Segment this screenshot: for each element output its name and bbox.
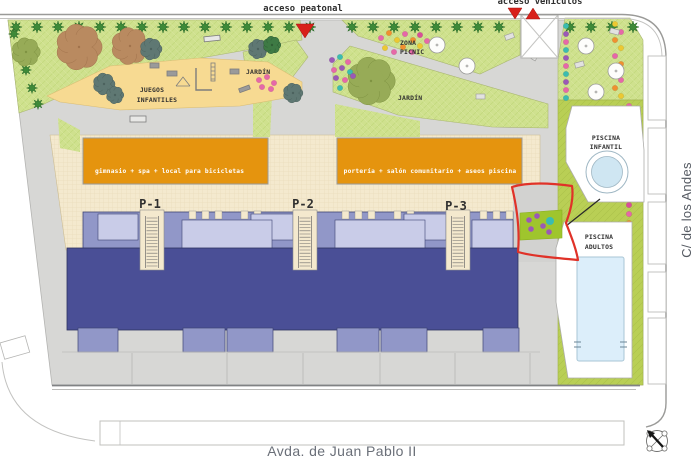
play-box-icon bbox=[230, 69, 239, 74]
adult-pool-water bbox=[577, 257, 624, 361]
tree-icon bbox=[262, 21, 274, 33]
portal-label-p1: P-1 bbox=[139, 197, 161, 211]
flower-dot bbox=[563, 63, 569, 69]
parking-bay bbox=[648, 56, 666, 120]
flower-dot bbox=[612, 21, 618, 27]
tree-dot bbox=[271, 44, 273, 46]
flower-dot bbox=[333, 75, 339, 81]
infant-pool-label-2: INFANTIL bbox=[590, 143, 622, 151]
entry-block bbox=[381, 328, 427, 352]
tree-icon bbox=[52, 21, 64, 33]
services-east-label: portería + salón comunitario + aseos pis… bbox=[344, 167, 517, 175]
flower-dot bbox=[563, 71, 569, 77]
entry-block bbox=[183, 328, 225, 352]
flower-dot bbox=[612, 53, 618, 59]
tree-icon bbox=[627, 21, 639, 33]
balcony-tooth bbox=[342, 211, 349, 219]
tree-dot bbox=[150, 48, 152, 50]
flower-dot bbox=[337, 54, 343, 60]
penthouse-block bbox=[98, 214, 138, 240]
infant-pool-water bbox=[592, 157, 623, 188]
tree-icon bbox=[31, 21, 43, 33]
portal-strip-p2 bbox=[293, 210, 317, 270]
balcony-tooth bbox=[241, 211, 248, 219]
tree-icon bbox=[178, 21, 190, 33]
tree-dot bbox=[292, 92, 294, 94]
tree-icon bbox=[199, 21, 211, 33]
entry-block bbox=[483, 328, 519, 352]
tree-icon bbox=[346, 21, 358, 33]
flower-dot bbox=[386, 30, 392, 36]
services-building-east bbox=[337, 138, 522, 184]
portal-label-p2: P-2 bbox=[292, 197, 314, 211]
flower-dot bbox=[563, 23, 569, 29]
playground-label-1: JUEGOS bbox=[140, 86, 164, 94]
tree-icon bbox=[9, 29, 20, 40]
flower-dot bbox=[526, 217, 532, 223]
services-west-label: gimnasio + spa + local para bicicletas bbox=[95, 167, 244, 175]
flower-dot bbox=[563, 87, 569, 93]
flower-dot bbox=[528, 226, 534, 232]
parking-bay bbox=[648, 202, 666, 264]
flower-dot bbox=[534, 213, 540, 219]
tree-dot bbox=[114, 94, 116, 96]
site-plan-page: gimnasio + spa + local para bicicletas p… bbox=[0, 0, 700, 475]
adult-pool-label-2: ADULTOS bbox=[585, 243, 613, 251]
tree-dot bbox=[257, 48, 259, 50]
tree-icon bbox=[94, 21, 106, 33]
tree-icon bbox=[430, 21, 442, 33]
site-plan-svg: gimnasio + spa + local para bicicletas p… bbox=[0, 0, 700, 475]
flower-dot bbox=[268, 86, 274, 92]
balcony-tooth bbox=[368, 211, 375, 219]
lounger-icon bbox=[476, 94, 485, 99]
tree-dot bbox=[370, 80, 372, 82]
picnic-table-center bbox=[595, 91, 598, 94]
adult-pool-label-1: PISCINA bbox=[585, 233, 613, 241]
flower-dot bbox=[391, 49, 397, 55]
picnic-table-center bbox=[615, 70, 618, 73]
tree-icon bbox=[472, 21, 484, 33]
vehicle-access-label: acceso vehículos bbox=[498, 0, 583, 7]
flower-dot bbox=[331, 67, 337, 73]
bench-icon bbox=[130, 116, 146, 122]
balcony-tooth bbox=[506, 211, 513, 219]
street-label-right: C/ de los Andes bbox=[679, 162, 694, 258]
flower-dot bbox=[563, 95, 569, 101]
pedestrian-access-label: acceso peatonal bbox=[263, 4, 342, 14]
tree-icon bbox=[451, 21, 463, 33]
tree-icon bbox=[493, 21, 505, 33]
play-box-icon bbox=[167, 71, 177, 76]
tree-icon bbox=[27, 83, 38, 94]
flower-dot bbox=[563, 39, 569, 45]
services-building-west bbox=[83, 138, 268, 184]
road-median-strip bbox=[100, 421, 624, 445]
flower-dot bbox=[329, 57, 335, 63]
flower-dot bbox=[345, 59, 351, 65]
tree-icon bbox=[585, 21, 597, 33]
flower-dot bbox=[271, 80, 277, 86]
large-tree-icon bbox=[107, 86, 124, 103]
balcony-tooth bbox=[493, 211, 500, 219]
parking-bays-layer bbox=[648, 56, 666, 384]
flower-dot bbox=[382, 45, 388, 51]
flower-dot bbox=[342, 77, 348, 83]
flower-dot bbox=[563, 55, 569, 61]
flower-dot bbox=[626, 202, 632, 208]
picnic-table-center bbox=[466, 65, 469, 68]
large-tree-icon bbox=[284, 83, 303, 103]
flower-dot bbox=[563, 79, 569, 85]
flower-dot bbox=[563, 31, 569, 37]
balcony-tooth bbox=[480, 211, 487, 219]
portal-label-p3: P-3 bbox=[445, 199, 467, 213]
tree-dot bbox=[129, 45, 131, 47]
street-label-bottom: Avda. de Juan Pablo II bbox=[267, 443, 416, 459]
flower-dot bbox=[339, 65, 345, 71]
garden-small-label: JARDÍN bbox=[246, 67, 270, 76]
infant-pool-label-1: PISCINA bbox=[592, 134, 620, 142]
tree-icon bbox=[283, 21, 295, 33]
tree-icon bbox=[33, 99, 44, 110]
tree-dot bbox=[103, 83, 105, 85]
flower-dot bbox=[394, 37, 400, 43]
tree-icon bbox=[157, 21, 169, 33]
balcony-tooth bbox=[202, 211, 209, 219]
flower-dot bbox=[546, 229, 552, 235]
tree-icon bbox=[241, 21, 253, 33]
playground-label-2: INFANTILES bbox=[137, 96, 177, 104]
flower-dot bbox=[618, 45, 624, 51]
flower-dot bbox=[337, 85, 343, 91]
tree-dot bbox=[25, 51, 27, 53]
portal-strip-p1 bbox=[140, 210, 164, 270]
flower-dot bbox=[540, 223, 546, 229]
picnic-label-2: PICNIC bbox=[400, 48, 424, 56]
tree-icon bbox=[409, 21, 421, 33]
flower-dot bbox=[546, 217, 554, 225]
tree-icon bbox=[367, 21, 379, 33]
balcony-tooth bbox=[189, 211, 196, 219]
parking-bay bbox=[648, 318, 666, 384]
entry-block bbox=[337, 328, 379, 352]
picnic-table-center bbox=[436, 44, 439, 47]
garden-large-label: JARDÍN bbox=[398, 93, 422, 102]
balcony-tooth bbox=[394, 211, 401, 219]
flower-dot bbox=[417, 32, 423, 38]
parking-bay bbox=[648, 128, 666, 194]
flower-dot bbox=[612, 37, 618, 43]
tree-dot bbox=[78, 46, 80, 48]
flower-dot bbox=[612, 85, 618, 91]
tree-icon bbox=[220, 21, 232, 33]
flower-dot bbox=[626, 211, 632, 217]
entry-block bbox=[78, 328, 118, 352]
flower-dot bbox=[259, 84, 265, 90]
flower-dot bbox=[402, 31, 408, 37]
picnic-table-center bbox=[585, 45, 588, 48]
balcony-tooth bbox=[355, 211, 362, 219]
balcony-tooth bbox=[215, 211, 222, 219]
flower-dot bbox=[350, 73, 356, 79]
flower-dot bbox=[256, 77, 262, 83]
parking-bay bbox=[648, 272, 666, 312]
flower-dot bbox=[618, 93, 624, 99]
picnic-label-1: ZONA bbox=[400, 39, 416, 47]
play-box-icon bbox=[150, 63, 159, 68]
portal-strip-p3 bbox=[446, 210, 470, 270]
flower-dot bbox=[563, 47, 569, 53]
entry-block bbox=[227, 328, 273, 352]
large-tree-icon bbox=[264, 36, 281, 53]
vehicle-ramp bbox=[521, 15, 558, 58]
flower-dot bbox=[378, 35, 384, 41]
